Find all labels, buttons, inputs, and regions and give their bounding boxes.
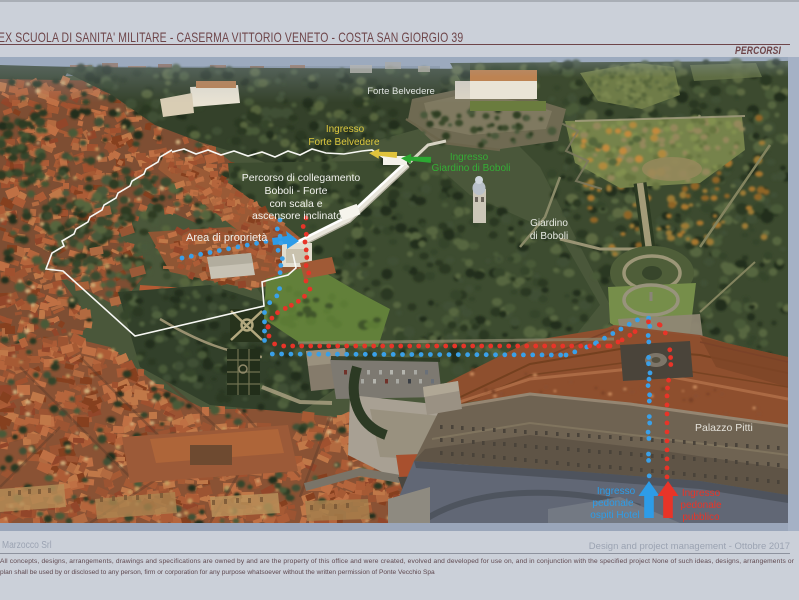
svg-text:ospiti Hotel: ospiti Hotel xyxy=(590,510,639,521)
svg-text:Boboli - Forte: Boboli - Forte xyxy=(264,185,327,197)
svg-text:Ingresso: Ingresso xyxy=(682,488,721,499)
svg-text:Ingresso: Ingresso xyxy=(326,124,365,135)
svg-text:pedonale: pedonale xyxy=(680,500,722,511)
svg-text:Forte Belvedere: Forte Belvedere xyxy=(308,137,380,148)
svg-text:con scala e: con scala e xyxy=(269,198,322,210)
svg-text:pedonale: pedonale xyxy=(592,498,634,509)
svg-text:Ingresso: Ingresso xyxy=(450,152,489,163)
svg-text:Palazzo Pitti: Palazzo Pitti xyxy=(695,422,753,434)
svg-text:Area di proprietà: Area di proprietà xyxy=(186,232,268,244)
svg-text:ascensore inclinato: ascensore inclinato xyxy=(252,210,342,222)
svg-text:Giardino: Giardino xyxy=(530,218,568,229)
svg-text:Giardino di Boboli: Giardino di Boboli xyxy=(432,163,511,174)
svg-text:Ingresso: Ingresso xyxy=(597,486,636,497)
svg-text:pubblico: pubblico xyxy=(682,512,720,523)
svg-text:di Boboli: di Boboli xyxy=(530,231,568,242)
svg-text:Percorso di collegamento: Percorso di collegamento xyxy=(242,172,361,184)
